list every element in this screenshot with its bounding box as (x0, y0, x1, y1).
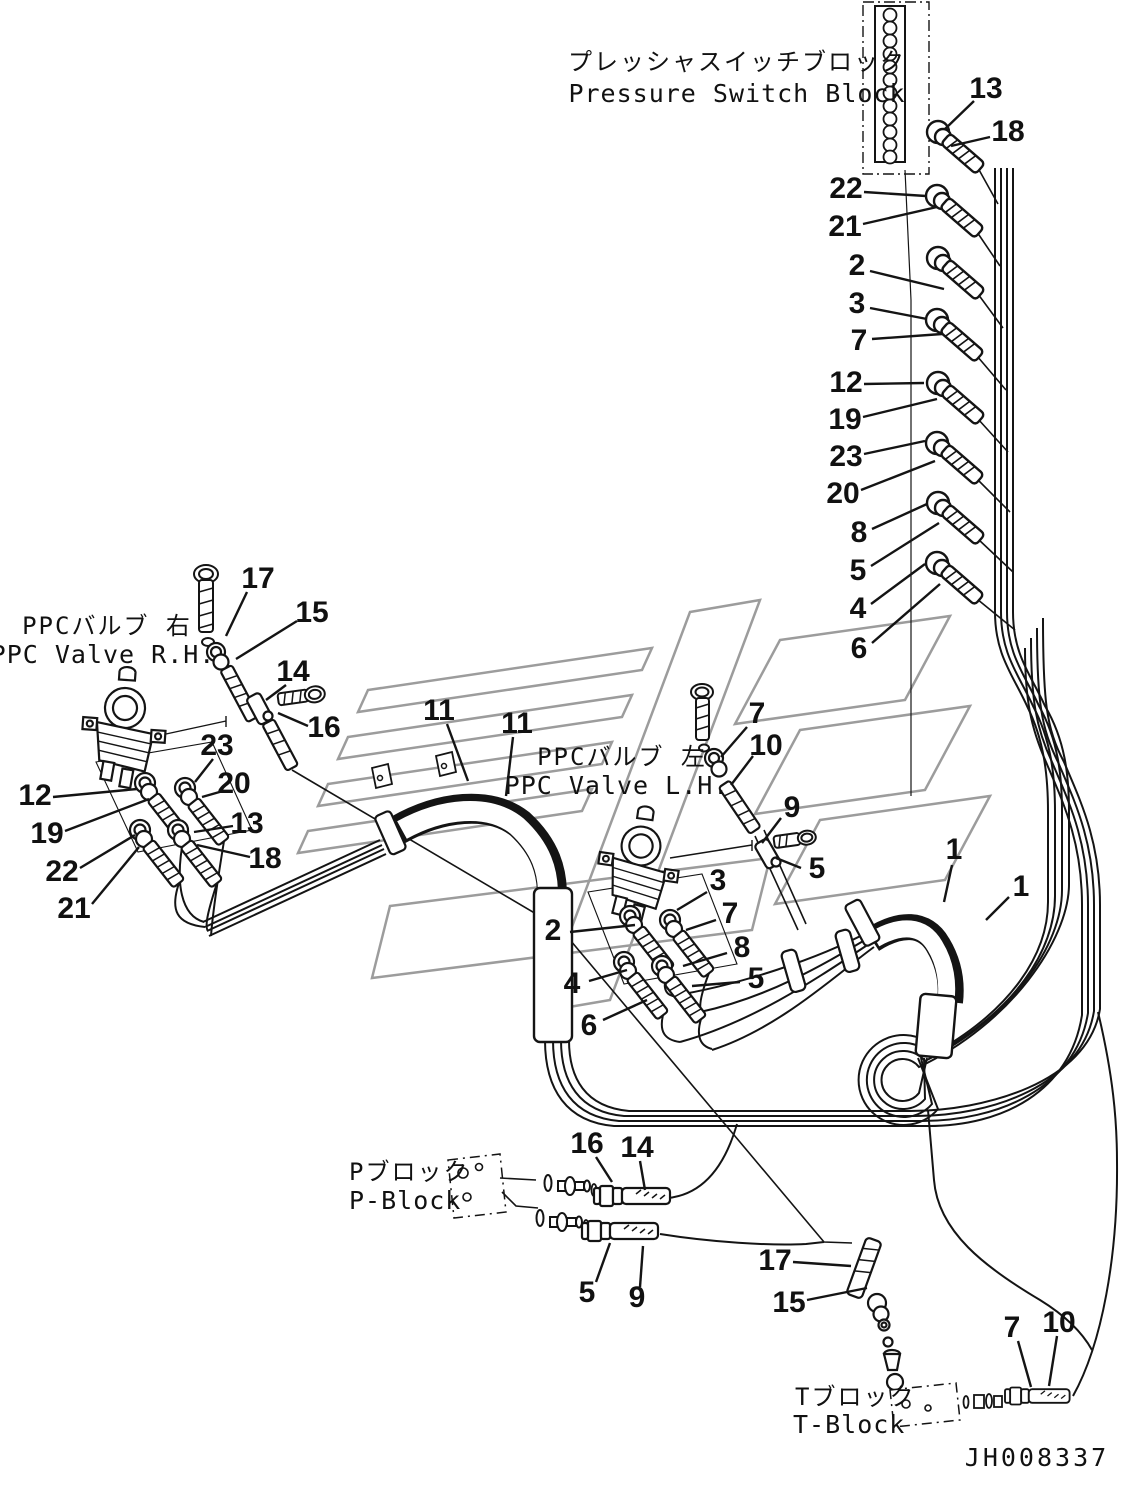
callout-22: 22 (829, 172, 862, 205)
callout-leader-5 (596, 1243, 610, 1282)
callout-5: 5 (809, 852, 826, 885)
callout-23: 23 (829, 440, 862, 473)
callout-15: 15 (295, 596, 328, 629)
callout-leader-23 (195, 759, 213, 782)
callout-19: 19 (828, 403, 861, 436)
label-ppc-valve-rh-en: PPC Valve R.H. (0, 640, 215, 669)
callout-7: 7 (1004, 1311, 1021, 1344)
callout-3: 3 (849, 287, 866, 320)
label-pressure-switch-block-en: Pressure Switch Block (568, 79, 905, 108)
callout-leader-17 (793, 1262, 851, 1266)
hose-clamps (780, 929, 860, 994)
callout-leader-1 (986, 897, 1009, 920)
callout-22: 22 (45, 855, 78, 888)
label-pressure-switch-block-jp: プレッシャスイッチブロック (568, 48, 906, 76)
callout-5: 5 (748, 962, 765, 995)
callout-8: 8 (734, 931, 751, 964)
callout-18: 18 (248, 842, 281, 875)
callout-20: 20 (217, 767, 250, 800)
callout-leader-6 (872, 584, 940, 643)
callout-leader-7 (686, 920, 716, 930)
callout-leader-17 (226, 592, 247, 636)
callout-14: 14 (620, 1131, 654, 1164)
callout-leader-7 (1018, 1341, 1031, 1387)
label-t-block-en: T-Block (793, 1410, 905, 1439)
drawing-number: JH008337 (965, 1443, 1109, 1472)
callout-16: 16 (570, 1127, 603, 1160)
callout-8: 8 (851, 516, 868, 549)
p-block-drawing (448, 1154, 670, 1241)
callout-18: 18 (991, 115, 1024, 148)
callout-leader-14 (640, 1161, 645, 1190)
callout-6: 6 (581, 1009, 598, 1042)
callout-leader-6 (603, 1000, 647, 1020)
callout-10: 10 (1042, 1306, 1075, 1339)
pressure-switch-fittings (926, 121, 985, 605)
callout-leader-7 (721, 727, 747, 757)
callout-9: 9 (629, 1281, 646, 1314)
parts-diagram-page: プレッシャスイッチブロック Pressure Switch Block PPCバ… (0, 0, 1142, 1496)
callout-5: 5 (579, 1276, 596, 1309)
label-t-block-jp: Tブロック (795, 1383, 915, 1411)
callout-16: 16 (307, 711, 340, 744)
callout-leader-2 (570, 925, 635, 932)
callout-leader-4 (871, 564, 925, 604)
callout-leader-1 (944, 865, 952, 902)
callout-leader-12 (864, 383, 924, 384)
callout-leader-3 (677, 892, 707, 910)
callout-leader-23 (864, 441, 925, 454)
callout-15: 15 (772, 1286, 805, 1319)
callout-21: 21 (57, 892, 90, 925)
label-ppc-valve-rh-jp: PPCバルブ 右 (22, 612, 192, 640)
callout-leader-15 (236, 621, 297, 659)
callout-10: 10 (749, 729, 782, 762)
label-p-block-en: P-Block (349, 1186, 461, 1215)
callout-leader-20 (861, 461, 935, 490)
callout-leader-13 (945, 101, 974, 129)
label-ppc-valve-lh-en: PPC Valve L.H. (505, 771, 730, 800)
label-p-block-jp: Pブロック (349, 1158, 469, 1186)
ppc-piping-diagram: プレッシャスイッチブロック Pressure Switch Block PPCバ… (0, 0, 1142, 1496)
callout-leader-19 (863, 399, 937, 417)
label-ppc-valve-lh-jp: PPCバルブ 左 (537, 743, 707, 771)
callout-leader-2 (870, 271, 944, 289)
callout-2: 2 (849, 249, 866, 282)
callout-12: 12 (829, 366, 862, 399)
callout-19: 19 (30, 817, 63, 850)
callout-leader-21 (863, 207, 937, 224)
callout-11: 11 (501, 707, 533, 740)
callout-21: 21 (828, 210, 861, 243)
callout-7: 7 (722, 897, 739, 930)
callout-5: 5 (850, 554, 867, 587)
callout-leader-8 (872, 504, 927, 529)
callout-7: 7 (851, 324, 868, 357)
callout-4: 4 (850, 592, 867, 625)
callout-leader-16 (596, 1157, 612, 1182)
callout-17: 17 (758, 1244, 791, 1277)
callout-1: 1 (946, 833, 963, 866)
callout-1: 1 (1013, 870, 1030, 903)
callout-11: 11 (423, 694, 455, 727)
callout-6: 6 (851, 632, 868, 665)
callout-12: 12 (18, 779, 51, 812)
callout-leader-5 (692, 982, 740, 986)
callout-9: 9 (784, 791, 801, 824)
callout-2: 2 (545, 914, 562, 947)
callout-leader-16 (278, 713, 308, 726)
callout-20: 20 (826, 477, 859, 510)
callout-13: 13 (230, 807, 263, 840)
callout-leader-22 (864, 192, 926, 196)
callout-leader-12 (53, 789, 137, 797)
callout-leader-3 (870, 308, 927, 319)
callout-leader-7 (872, 334, 942, 339)
callout-leader-10 (1049, 1336, 1057, 1386)
callout-23: 23 (200, 729, 233, 762)
callout-3: 3 (710, 864, 727, 897)
callout-17: 17 (241, 562, 274, 595)
callout-14: 14 (276, 655, 310, 688)
callout-13: 13 (969, 72, 1002, 105)
callout-4: 4 (564, 967, 581, 1000)
callout-7: 7 (749, 697, 766, 730)
